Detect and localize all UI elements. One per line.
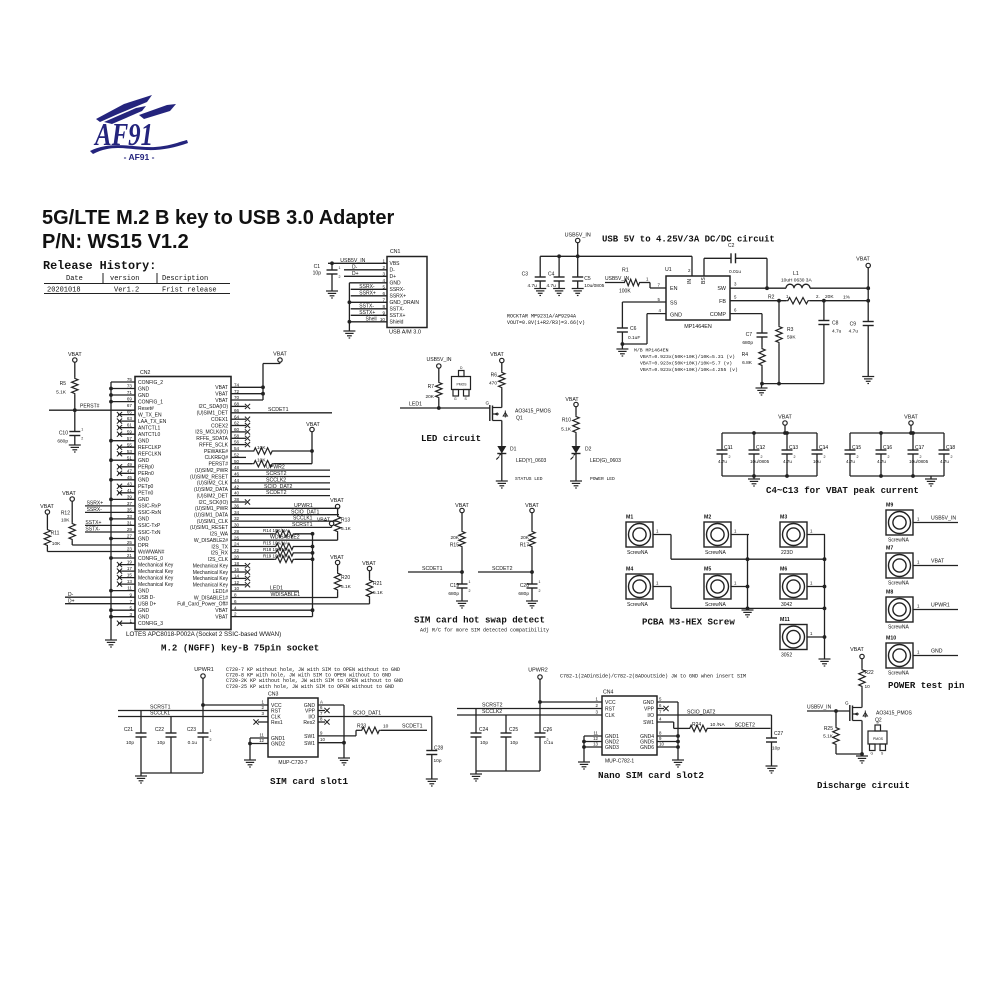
svg-text:2: 2 bbox=[951, 455, 953, 459]
svg-text:RST: RST bbox=[605, 707, 615, 713]
svg-text:R11: R11 bbox=[51, 531, 60, 537]
svg-text:ScrewNA: ScrewNA bbox=[705, 550, 727, 556]
svg-text:20201018: 20201018 bbox=[47, 287, 81, 295]
svg-text:C1: C1 bbox=[314, 264, 321, 270]
svg-text:W_DISABLE2#: W_DISABLE2# bbox=[194, 538, 228, 544]
svg-text:C8: C8 bbox=[832, 321, 839, 327]
svg-text:WDISABLE1: WDISABLE1 bbox=[271, 592, 301, 598]
svg-text:SCCLK1: SCCLK1 bbox=[150, 711, 170, 717]
svg-text:CN2: CN2 bbox=[140, 370, 150, 376]
svg-text:- AF91 -: - AF91 - bbox=[124, 152, 155, 162]
svg-text:RFFE_SCLK: RFFE_SCLK bbox=[199, 442, 229, 448]
svg-text:(U)SIM1_RESET: (U)SIM1_RESET bbox=[190, 525, 228, 531]
svg-text:IN: IN bbox=[687, 279, 693, 284]
svg-text:VBS: VBS bbox=[390, 261, 401, 267]
svg-text:M6: M6 bbox=[780, 567, 787, 573]
svg-text:C17: C17 bbox=[915, 445, 924, 451]
svg-text:Mechanical Key: Mechanical Key bbox=[193, 576, 229, 582]
svg-text:P/N: WS15 V1.2: P/N: WS15 V1.2 bbox=[42, 231, 189, 253]
svg-text:ANTCTL1: ANTCTL1 bbox=[138, 425, 160, 431]
svg-text:LED circuit: LED circuit bbox=[421, 433, 481, 444]
svg-text:I2S_MCLK(IO): I2S_MCLK(IO) bbox=[195, 430, 228, 436]
svg-text:MUP-C782-1: MUP-C782-1 bbox=[605, 759, 634, 765]
svg-text:LOTES APC8018-P002A (Socket 2: LOTES APC8018-P002A (Socket 2 SSIC-based… bbox=[126, 631, 281, 638]
svg-text:SCDET2: SCDET2 bbox=[492, 566, 513, 572]
svg-text:10p: 10p bbox=[126, 740, 134, 746]
svg-text:USB D+: USB D+ bbox=[138, 602, 156, 608]
svg-text:20K: 20K bbox=[520, 535, 529, 541]
svg-text:4.7u: 4.7u bbox=[940, 459, 949, 464]
svg-text:223D: 223D bbox=[781, 550, 793, 556]
svg-text:SCDET1: SCDET1 bbox=[422, 566, 443, 572]
svg-text:D-: D- bbox=[390, 267, 396, 273]
svg-text:Description: Description bbox=[162, 275, 208, 283]
svg-text:Shell: Shell bbox=[366, 316, 377, 322]
svg-text:LED1: LED1 bbox=[270, 586, 283, 592]
svg-text:59K: 59K bbox=[787, 335, 796, 341]
svg-text:CONFIG_0: CONFIG_0 bbox=[138, 556, 163, 562]
svg-text:C13: C13 bbox=[789, 445, 798, 451]
svg-text:Res2: Res2 bbox=[303, 720, 315, 726]
svg-text:USB5V_IN: USB5V_IN bbox=[931, 516, 956, 522]
svg-text:C6: C6 bbox=[630, 326, 637, 332]
svg-text:I2S_CLK: I2S_CLK bbox=[208, 557, 229, 563]
svg-text:D+: D+ bbox=[68, 598, 75, 604]
svg-text:Mechanical Key: Mechanical Key bbox=[193, 570, 229, 576]
svg-text:ScrewNA: ScrewNA bbox=[705, 602, 727, 608]
svg-text:STATUS LED: STATUS LED bbox=[515, 476, 543, 482]
svg-text:PMOS: PMOS bbox=[873, 737, 884, 741]
svg-text:SSIC-TxP: SSIC-TxP bbox=[138, 523, 161, 529]
svg-text:version: version bbox=[110, 275, 139, 283]
svg-text:SCDET2: SCDET2 bbox=[266, 490, 287, 496]
svg-text:Date: Date bbox=[66, 275, 83, 283]
svg-text:0.1u: 0.1u bbox=[188, 740, 198, 746]
svg-text:0.1uF: 0.1uF bbox=[628, 335, 640, 341]
svg-text:GND: GND bbox=[390, 280, 402, 286]
svg-text:G: G bbox=[871, 752, 874, 756]
svg-text:Frist release: Frist release bbox=[162, 287, 217, 295]
svg-text:LED(Y)_0603: LED(Y)_0603 bbox=[516, 458, 547, 464]
svg-text:2: 2 bbox=[210, 738, 212, 742]
svg-text:680p: 680p bbox=[742, 340, 753, 346]
svg-text:VBAT: VBAT bbox=[904, 415, 918, 421]
svg-text:VBAT: VBAT bbox=[330, 498, 344, 504]
svg-text:VBAT=0.923x(50K+10K)/10K=4.255: VBAT=0.923x(50K+10K)/10K=4.255 (v) bbox=[640, 367, 738, 373]
svg-text:SSTX+: SSTX+ bbox=[390, 313, 406, 319]
svg-text:I2C_SCK(IO): I2C_SCK(IO) bbox=[199, 500, 229, 506]
svg-text:Mechanical Key: Mechanical Key bbox=[193, 583, 229, 589]
svg-text:FB: FB bbox=[719, 299, 726, 305]
svg-text:Mechanical Key: Mechanical Key bbox=[138, 575, 174, 581]
svg-text:20K: 20K bbox=[425, 394, 434, 400]
svg-text:C5: C5 bbox=[584, 276, 591, 282]
svg-text:2: 2 bbox=[81, 437, 83, 441]
svg-text:SSTX+: SSTX+ bbox=[85, 520, 101, 526]
svg-text:(U)SIM1_PWR: (U)SIM1_PWR bbox=[195, 506, 228, 512]
svg-text:M8: M8 bbox=[886, 590, 893, 596]
svg-text:D-: D- bbox=[68, 592, 74, 598]
svg-text:VBAT=0.923x(50K+10K)/10K=5.31: VBAT=0.923x(50K+10K)/10K=5.31 (v) bbox=[640, 354, 735, 360]
svg-text:10 /NA: 10 /NA bbox=[710, 722, 725, 728]
svg-text:UPWR1: UPWR1 bbox=[294, 503, 313, 509]
svg-text:55: 55 bbox=[127, 442, 133, 447]
svg-text:UPWR2: UPWR2 bbox=[528, 668, 547, 674]
svg-text:VBAT: VBAT bbox=[215, 385, 228, 391]
svg-text:1%: 1% bbox=[843, 295, 851, 301]
svg-text:C26: C26 bbox=[543, 727, 552, 733]
svg-text:VBAT: VBAT bbox=[850, 647, 864, 653]
svg-text:Mechanical Key: Mechanical Key bbox=[138, 562, 174, 568]
svg-text:POWER test pin: POWER test pin bbox=[888, 680, 964, 691]
svg-text:10: 10 bbox=[320, 737, 325, 742]
svg-text:R17: R17 bbox=[520, 543, 529, 549]
svg-text:U1: U1 bbox=[665, 267, 672, 273]
svg-text:SCRST1: SCRST1 bbox=[292, 522, 313, 528]
svg-text:Res1: Res1 bbox=[271, 720, 283, 726]
svg-text:42: 42 bbox=[234, 484, 240, 489]
svg-text:10p: 10p bbox=[480, 740, 488, 746]
svg-text:SCCLK2: SCCLK2 bbox=[482, 709, 502, 715]
svg-text:SCDET1: SCDET1 bbox=[268, 407, 289, 413]
svg-text:680p: 680p bbox=[57, 439, 68, 445]
svg-text:2: 2 bbox=[539, 589, 541, 593]
svg-text:USB5V_IN: USB5V_IN bbox=[426, 357, 451, 363]
svg-text:10p: 10p bbox=[313, 270, 322, 276]
svg-text:UPWR1: UPWR1 bbox=[194, 667, 213, 673]
svg-text:SW1: SW1 bbox=[304, 741, 315, 747]
svg-text:5.1K: 5.1K bbox=[341, 526, 352, 532]
svg-text:R7: R7 bbox=[428, 384, 435, 390]
svg-text:R2: R2 bbox=[768, 295, 775, 301]
svg-text:M10: M10 bbox=[886, 636, 896, 642]
svg-text:(U)SIM2_DET: (U)SIM2_DET bbox=[197, 493, 228, 499]
svg-text:MP1464EN: MP1464EN bbox=[684, 324, 712, 330]
svg-text:SSIC-RxP: SSIC-RxP bbox=[138, 504, 161, 510]
svg-text:2: 2 bbox=[857, 455, 859, 459]
svg-text:(U)SIM1_DATA: (U)SIM1_DATA bbox=[194, 513, 229, 519]
svg-text:1: 1 bbox=[81, 428, 83, 432]
svg-text:4.7u: 4.7u bbox=[832, 329, 842, 335]
svg-text:R6: R6 bbox=[491, 373, 498, 379]
svg-text:35: 35 bbox=[127, 508, 133, 513]
svg-text:10: 10 bbox=[659, 742, 664, 747]
svg-text:DPR: DPR bbox=[138, 543, 149, 549]
svg-text:R15: R15 bbox=[450, 543, 459, 549]
svg-text:4.7u: 4.7u bbox=[846, 459, 855, 464]
svg-text:10K: 10K bbox=[61, 518, 70, 524]
svg-text:Mechanical Key: Mechanical Key bbox=[138, 582, 174, 588]
svg-text:ROCKTAR MP9231A/AP9294A: ROCKTAR MP9231A/AP9294A bbox=[507, 314, 576, 320]
svg-text:Reset#: Reset# bbox=[138, 406, 154, 412]
svg-text:C24: C24 bbox=[479, 727, 488, 733]
svg-text:SCRST1: SCRST1 bbox=[150, 705, 171, 711]
svg-text:C782-1(2ADinSide)/C782-2(8ADou: C782-1(2ADinSide)/C782-2(8ADoutSide) JW … bbox=[560, 674, 746, 680]
svg-text:I/O: I/O bbox=[647, 713, 654, 719]
svg-text:SSTX+: SSTX+ bbox=[359, 310, 375, 316]
svg-text:Adj R/C for more SIM detected: Adj R/C for more SIM detected compatibil… bbox=[420, 628, 549, 634]
svg-text:R3: R3 bbox=[787, 327, 794, 333]
svg-text:SCIO_DAT1: SCIO_DAT1 bbox=[291, 509, 320, 515]
svg-text:Mechanical Key: Mechanical Key bbox=[193, 564, 229, 570]
svg-text:CN1: CN1 bbox=[390, 249, 400, 255]
svg-text:10: 10 bbox=[383, 724, 389, 730]
svg-text:CONFIG_2: CONFIG_2 bbox=[138, 380, 163, 386]
svg-text:C14: C14 bbox=[819, 445, 828, 451]
svg-text:10K: 10K bbox=[257, 445, 266, 451]
svg-text:D+: D+ bbox=[352, 271, 359, 277]
svg-text:GND: GND bbox=[931, 649, 943, 655]
svg-text:1: 1 bbox=[539, 580, 541, 584]
svg-text:LED1#: LED1# bbox=[213, 589, 229, 595]
svg-text:(U)SIM2_PWR: (U)SIM2_PWR bbox=[195, 468, 228, 474]
svg-text:ANTCTL0: ANTCTL0 bbox=[138, 432, 160, 438]
svg-text:POWER LED: POWER LED bbox=[590, 476, 615, 482]
svg-text:470: 470 bbox=[489, 381, 497, 387]
svg-text:C28: C28 bbox=[434, 746, 443, 752]
svg-text:SSRX-: SSRX- bbox=[390, 287, 406, 293]
svg-text:Full_Card_Power_Off#: Full_Card_Power_Off# bbox=[177, 602, 228, 608]
svg-text:D2: D2 bbox=[585, 447, 592, 453]
svg-text:SSRX+: SSRX+ bbox=[359, 290, 376, 296]
svg-text:10: 10 bbox=[865, 684, 871, 690]
svg-text:AO3415_PMOS: AO3415_PMOS bbox=[876, 711, 913, 717]
svg-text:LED1: LED1 bbox=[409, 402, 422, 408]
svg-text:USB 5V to 4.25V/3A DC/DC circu: USB 5V to 4.25V/3A DC/DC circuit bbox=[602, 235, 775, 245]
svg-text:GND: GND bbox=[138, 608, 150, 614]
svg-text:5G/LTE M.2 B key to USB 3.0 Ad: 5G/LTE M.2 B key to USB 3.0 Adapter bbox=[42, 207, 395, 229]
svg-text:SSRX-: SSRX- bbox=[87, 507, 103, 513]
svg-text:VBAT: VBAT bbox=[317, 518, 331, 524]
svg-text:USB5V_IN: USB5V_IN bbox=[807, 705, 832, 711]
svg-text:C3: C3 bbox=[522, 272, 529, 278]
svg-text:GND: GND bbox=[670, 313, 682, 319]
svg-text:5.1K: 5.1K bbox=[56, 390, 67, 396]
svg-text:10p: 10p bbox=[510, 740, 518, 746]
svg-text:R14 10K/NA: R14 10K/NA bbox=[263, 528, 288, 533]
svg-text:D+: D+ bbox=[390, 274, 397, 280]
svg-text:WoWWAN#: WoWWAN# bbox=[138, 549, 165, 555]
svg-text:VBAT: VBAT bbox=[215, 398, 228, 404]
svg-text:USB5V_IN: USB5V_IN bbox=[340, 258, 365, 264]
svg-text:SIM card hot swap detect: SIM card hot swap detect bbox=[414, 615, 545, 626]
svg-text:L1: L1 bbox=[793, 271, 799, 277]
svg-text:C19: C19 bbox=[450, 583, 459, 589]
svg-text:680p: 680p bbox=[448, 591, 459, 597]
svg-text:M.2 (NGFF) key-B 75pin socket: M.2 (NGFF) key-B 75pin socket bbox=[161, 643, 319, 654]
svg-text:VBAT: VBAT bbox=[215, 392, 228, 398]
svg-text:100K: 100K bbox=[619, 289, 631, 295]
svg-text:PETn0: PETn0 bbox=[138, 491, 154, 497]
svg-text:1: 1 bbox=[469, 580, 471, 584]
svg-text:ScrewNA: ScrewNA bbox=[627, 550, 649, 556]
svg-text:VBAT: VBAT bbox=[490, 352, 504, 358]
svg-text:REFCLKN: REFCLKN bbox=[138, 452, 162, 458]
svg-text:(U)SIM2_RESET: (U)SIM2_RESET bbox=[190, 474, 228, 480]
svg-text:10u: 10u bbox=[813, 459, 821, 464]
svg-text:CONFIG_3: CONFIG_3 bbox=[138, 621, 163, 627]
svg-text:59: 59 bbox=[127, 429, 133, 434]
svg-text:PMOS: PMOS bbox=[457, 383, 468, 387]
svg-text:67: 67 bbox=[127, 403, 133, 408]
svg-text:5.1K: 5.1K bbox=[341, 584, 352, 590]
svg-text:CN4: CN4 bbox=[603, 690, 613, 696]
svg-text:GND_DRAIN: GND_DRAIN bbox=[390, 300, 420, 306]
svg-text:R19 10K/NA: R19 10K/NA bbox=[263, 553, 288, 558]
svg-text:SCDET1: SCDET1 bbox=[402, 724, 423, 730]
svg-text:AO3415_PMOS: AO3415_PMOS bbox=[515, 409, 552, 415]
svg-text:SSRX-: SSRX- bbox=[359, 284, 375, 290]
svg-text:ScrewNA: ScrewNA bbox=[888, 671, 910, 677]
svg-text:M2: M2 bbox=[704, 515, 711, 521]
svg-text:R5: R5 bbox=[60, 381, 67, 387]
svg-text:COEX1: COEX1 bbox=[211, 417, 228, 423]
svg-text:SW: SW bbox=[717, 286, 727, 292]
svg-text:C4~C13 for VBAT peak current: C4~C13 for VBAT peak current bbox=[766, 485, 919, 496]
svg-text:2: 2 bbox=[469, 589, 471, 593]
svg-text:C10: C10 bbox=[59, 431, 68, 437]
svg-text:(U)SIM2_CLK: (U)SIM2_CLK bbox=[197, 481, 229, 487]
svg-text:10uH 0630 3A: 10uH 0630 3A bbox=[781, 278, 812, 284]
svg-text:VPP: VPP bbox=[644, 707, 655, 713]
svg-text:SCIO_DAT1: SCIO_DAT1 bbox=[353, 711, 382, 717]
svg-text:53: 53 bbox=[127, 449, 133, 454]
svg-text:GND: GND bbox=[138, 615, 150, 621]
svg-text:MUP-C720-7: MUP-C720-7 bbox=[278, 760, 307, 766]
svg-text:VBAT: VBAT bbox=[40, 504, 54, 510]
svg-text:1: 1 bbox=[210, 729, 212, 733]
svg-text:R12: R12 bbox=[61, 511, 70, 517]
svg-text:10K: 10K bbox=[52, 541, 61, 547]
svg-text:R21: R21 bbox=[373, 581, 382, 587]
svg-text:A: A bbox=[320, 700, 323, 705]
svg-text:GND: GND bbox=[138, 588, 150, 594]
svg-text:GND: GND bbox=[138, 497, 150, 503]
svg-text:SCRST2: SCRST2 bbox=[482, 703, 503, 709]
svg-text:GND: GND bbox=[643, 700, 655, 706]
svg-text:R1: R1 bbox=[622, 268, 629, 274]
svg-text:4.7u: 4.7u bbox=[849, 329, 859, 335]
svg-text:3042: 3042 bbox=[781, 602, 792, 608]
svg-text:M11: M11 bbox=[780, 617, 790, 623]
svg-text:C9: C9 bbox=[850, 322, 857, 328]
svg-text:SCDET2: SCDET2 bbox=[735, 723, 756, 729]
svg-text:PERp0: PERp0 bbox=[138, 465, 154, 471]
svg-text:ScrewNA: ScrewNA bbox=[888, 581, 910, 587]
svg-text:R13: R13 bbox=[341, 518, 350, 524]
svg-text:UPWR1: UPWR1 bbox=[931, 603, 950, 609]
svg-text:I2C_SDA(IO): I2C_SDA(IO) bbox=[199, 404, 229, 410]
svg-text:64: 64 bbox=[234, 414, 240, 419]
svg-text:C25: C25 bbox=[509, 727, 518, 733]
svg-text:20K: 20K bbox=[450, 535, 459, 541]
svg-text:GND: GND bbox=[138, 517, 150, 523]
svg-text:4.7u: 4.7u bbox=[877, 459, 886, 464]
svg-text:R15 10K/NA: R15 10K/NA bbox=[263, 541, 288, 546]
svg-text:M1: M1 bbox=[626, 515, 633, 521]
svg-text:VBAT: VBAT bbox=[778, 415, 792, 421]
svg-text:PERn0: PERn0 bbox=[138, 471, 154, 477]
svg-text:C15: C15 bbox=[852, 445, 861, 451]
svg-text:SCIO_DAT2: SCIO_DAT2 bbox=[264, 484, 293, 490]
svg-text:57: 57 bbox=[127, 436, 133, 441]
svg-text:10p: 10p bbox=[772, 746, 780, 752]
svg-text:SSTX-: SSTX- bbox=[359, 303, 374, 309]
svg-text:SSTX-: SSTX- bbox=[85, 527, 100, 533]
svg-text:VBAT: VBAT bbox=[68, 352, 82, 358]
svg-text:C720-25 KP with hole, JW with: C720-25 KP with hole, JW with SIM to OPE… bbox=[226, 684, 394, 690]
svg-text:PERST#: PERST# bbox=[80, 404, 100, 410]
svg-text:R18 10K/NA: R18 10K/NA bbox=[263, 547, 288, 552]
svg-text:GND3: GND3 bbox=[605, 745, 619, 751]
svg-text:Nano SIM card slot2: Nano SIM card slot2 bbox=[598, 770, 704, 781]
svg-text:C7: C7 bbox=[746, 332, 753, 338]
svg-text:M9: M9 bbox=[886, 503, 893, 509]
svg-text:SSRX+: SSRX+ bbox=[390, 293, 407, 299]
svg-text:USB A/M 3.0: USB A/M 3.0 bbox=[389, 330, 421, 336]
svg-text:G: G bbox=[454, 397, 457, 401]
svg-text:G: G bbox=[845, 701, 849, 706]
svg-text:C21: C21 bbox=[124, 727, 133, 733]
svg-text:C4: C4 bbox=[548, 272, 555, 278]
svg-text:D-: D- bbox=[352, 264, 358, 270]
svg-text:CONFIG_1: CONFIG_1 bbox=[138, 399, 163, 405]
svg-text:C23: C23 bbox=[187, 727, 196, 733]
svg-text:11: 11 bbox=[593, 731, 598, 736]
svg-text:VOUT=0.8V(1+R2/R3)=3.66(v): VOUT=0.8V(1+R2/R3)=3.66(v) bbox=[507, 320, 585, 326]
svg-text:ScrewNA: ScrewNA bbox=[888, 538, 910, 544]
svg-text:C2: C2 bbox=[728, 243, 735, 249]
svg-text:M/B MP1464EN: M/B MP1464EN bbox=[634, 348, 669, 354]
svg-text:12: 12 bbox=[259, 738, 264, 743]
svg-text:2.: 2. bbox=[816, 294, 820, 299]
svg-text:VBAT: VBAT bbox=[215, 614, 228, 620]
svg-text:PCBA M3-HEX Screw: PCBA M3-HEX Screw bbox=[642, 617, 735, 628]
svg-text:VBAT: VBAT bbox=[931, 559, 945, 565]
svg-text:M7: M7 bbox=[886, 546, 893, 552]
svg-text:USB5V_IN: USB5V_IN bbox=[565, 233, 591, 239]
svg-text:C18: C18 bbox=[946, 445, 955, 451]
svg-text:50: 50 bbox=[234, 459, 240, 464]
svg-text:SSIC-TxN: SSIC-TxN bbox=[138, 530, 161, 536]
svg-text:PEWAKE#: PEWAKE# bbox=[204, 449, 228, 455]
svg-text:SSIC-RxN: SSIC-RxN bbox=[138, 510, 161, 516]
svg-text:ScrewNA: ScrewNA bbox=[888, 625, 910, 631]
svg-text:(U)SIM2_DATA: (U)SIM2_DATA bbox=[194, 487, 229, 493]
svg-text:10K: 10K bbox=[257, 458, 266, 464]
svg-text:M5: M5 bbox=[704, 567, 711, 573]
svg-text:51: 51 bbox=[127, 455, 133, 460]
svg-text:SW1: SW1 bbox=[304, 734, 315, 740]
svg-text:SCIO_DAT2: SCIO_DAT2 bbox=[687, 710, 716, 716]
svg-text:VCC: VCC bbox=[605, 700, 616, 706]
svg-text:LAA_TX_EN: LAA_TX_EN bbox=[138, 419, 167, 425]
svg-text:COMP: COMP bbox=[710, 312, 727, 318]
svg-text:PERST#: PERST# bbox=[209, 462, 229, 468]
svg-text:10u/0805: 10u/0805 bbox=[750, 459, 770, 464]
svg-text:C22: C22 bbox=[155, 727, 164, 733]
svg-text:CLKREQ#: CLKREQ# bbox=[205, 455, 229, 461]
svg-text:12: 12 bbox=[593, 736, 598, 741]
svg-text:11: 11 bbox=[259, 733, 264, 738]
svg-text:0.1u: 0.1u bbox=[544, 740, 554, 746]
svg-text:SSTX-: SSTX- bbox=[390, 306, 405, 312]
svg-text:Mechanical Key: Mechanical Key bbox=[138, 569, 174, 575]
svg-text:VBAT: VBAT bbox=[62, 491, 76, 497]
svg-text:SIM card slot1: SIM card slot1 bbox=[270, 776, 349, 787]
svg-text:(U)SIM1_DET: (U)SIM1_DET bbox=[197, 411, 228, 417]
svg-text:C11: C11 bbox=[724, 445, 733, 451]
